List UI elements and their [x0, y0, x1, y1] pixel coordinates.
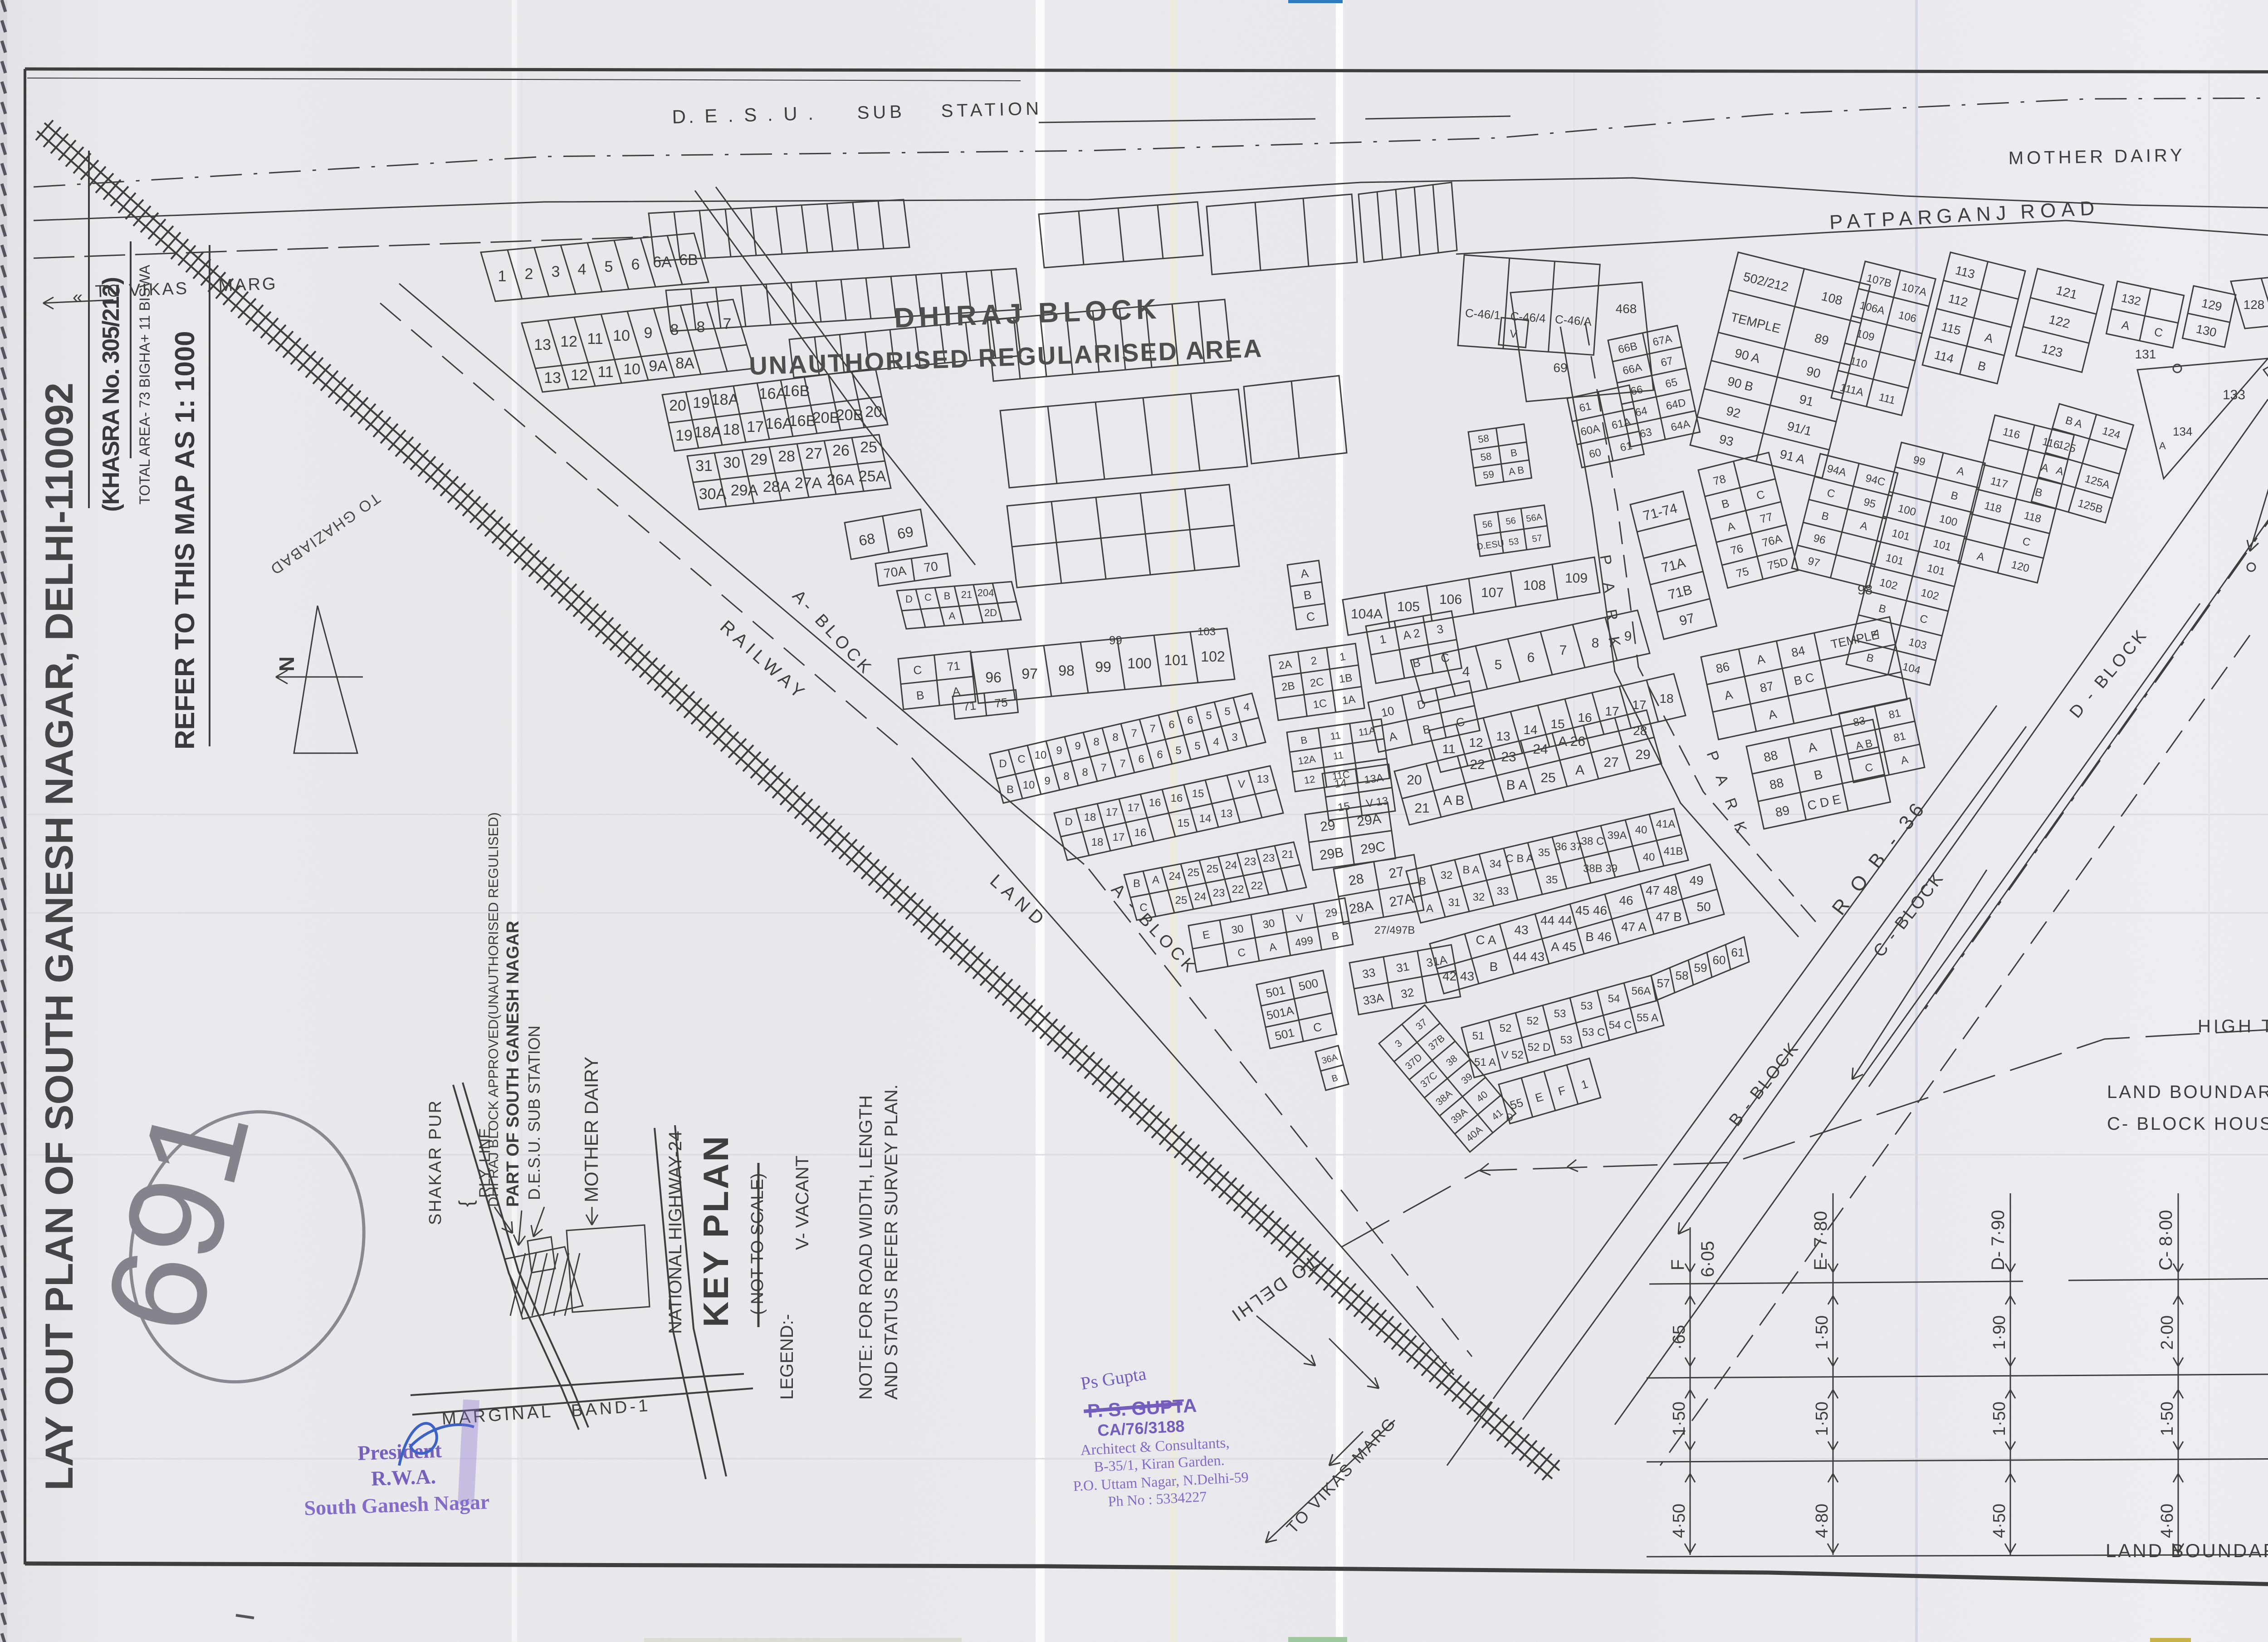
svg-text:133: 133 — [2223, 387, 2245, 402]
svg-text:13: 13 — [544, 369, 561, 387]
svg-text:7: 7 — [1119, 758, 1125, 770]
svg-text:11: 11 — [587, 330, 603, 348]
svg-text:A: A — [949, 610, 956, 622]
svg-text:51: 51 — [1472, 1030, 1485, 1042]
svg-text:43: 43 — [1514, 923, 1528, 937]
svg-text:14: 14 — [1334, 777, 1347, 790]
svg-text:18A: 18A — [711, 391, 739, 408]
svg-text:MOTHER DAIRY: MOTHER DAIRY — [581, 1057, 602, 1202]
svg-text:9A: 9A — [649, 358, 668, 375]
svg-text:SUB: SUB — [857, 102, 905, 123]
svg-text:B A: B A — [1506, 778, 1528, 793]
svg-text:1·90: 1·90 — [1990, 1315, 2009, 1350]
svg-text:6: 6 — [1138, 753, 1144, 765]
svg-text:A: A — [1426, 902, 1433, 915]
svg-text:87: 87 — [1759, 679, 1775, 696]
svg-text:45 46: 45 46 — [1575, 903, 1607, 917]
svg-text:44 43: 44 43 — [1513, 950, 1545, 964]
svg-text:69: 69 — [896, 523, 914, 542]
svg-text:17: 17 — [1605, 704, 1619, 718]
svg-text:56: 56 — [1482, 519, 1493, 530]
svg-text:3: 3 — [1232, 731, 1237, 744]
svg-text:2D: 2D — [984, 607, 997, 618]
svg-text:6: 6 — [1527, 650, 1535, 665]
svg-text:B: B — [1007, 784, 1014, 796]
svg-text:8: 8 — [1093, 736, 1099, 748]
svg-text:131: 131 — [2135, 347, 2156, 361]
svg-text:104A: 104A — [1351, 607, 1383, 622]
svg-text:35: 35 — [1546, 874, 1558, 886]
svg-text:59: 59 — [1694, 961, 1707, 975]
svg-text:11: 11 — [1442, 742, 1455, 756]
svg-text:1·50: 1·50 — [1670, 1402, 1689, 1436]
svg-text:4·50: 4·50 — [1670, 1504, 1689, 1538]
svg-text:NOTE: FOR ROAD WIDTH, LENGTH: NOTE: FOR ROAD WIDTH, LENGTH — [856, 1095, 876, 1400]
svg-text:61: 61 — [1731, 946, 1745, 959]
svg-text:56A: 56A — [1632, 985, 1651, 997]
svg-text:58: 58 — [1477, 432, 1490, 445]
svg-text:65: 65 — [1664, 376, 1679, 391]
svg-text:49: 49 — [1689, 873, 1703, 887]
svg-text:52: 52 — [1500, 1022, 1512, 1034]
svg-text:10: 10 — [1035, 749, 1047, 761]
svg-text:15: 15 — [1550, 717, 1564, 731]
svg-text:1: 1 — [498, 268, 507, 285]
svg-text:53: 53 — [1560, 1034, 1573, 1046]
svg-text:57: 57 — [1531, 533, 1543, 544]
svg-text:8: 8 — [1592, 636, 1599, 651]
svg-text:134: 134 — [2173, 425, 2192, 438]
svg-text:27: 27 — [1388, 864, 1405, 881]
svg-text:102: 102 — [1201, 648, 1225, 665]
svg-text:4: 4 — [578, 261, 587, 278]
svg-text:7: 7 — [1100, 762, 1106, 774]
svg-text:25: 25 — [1207, 863, 1219, 875]
svg-text:47 48: 47 48 — [1646, 883, 1677, 897]
svg-text:61: 61 — [1578, 400, 1593, 415]
svg-text:ROAD: ROAD — [2020, 197, 2100, 223]
svg-text:STATION: STATION — [941, 98, 1042, 121]
svg-text:LEGEND:-: LEGEND:- — [777, 1314, 797, 1400]
svg-text:C A: C A — [1476, 933, 1496, 947]
svg-text:35: 35 — [1538, 847, 1550, 859]
svg-text:51 A: 51 A — [1474, 1056, 1496, 1069]
svg-text:GANJ: GANJ — [1936, 201, 2012, 228]
svg-text:22: 22 — [1251, 880, 1263, 892]
svg-text:31: 31 — [695, 457, 713, 475]
svg-text:29: 29 — [1324, 906, 1338, 920]
svg-text:D.E.S.U. SUB STATION: D.E.S.U. SUB STATION — [525, 1025, 543, 1200]
svg-text:16B: 16B — [782, 382, 810, 400]
svg-text:17: 17 — [747, 418, 764, 436]
svg-text:9: 9 — [1624, 629, 1632, 644]
svg-text:128: 128 — [2244, 298, 2265, 312]
svg-text:6: 6 — [1168, 719, 1174, 731]
svg-text:1A: 1A — [1341, 693, 1356, 707]
svg-text:C: C — [1139, 902, 1147, 914]
svg-text:19: 19 — [675, 427, 693, 444]
svg-text:DHI RAJ BLOCK APPROVED(UNAUTHO: DHI RAJ BLOCK APPROVED(UNAUTHORISED REGU… — [485, 812, 501, 1207]
svg-text:2B: 2B — [1281, 680, 1296, 694]
svg-text:10: 10 — [1023, 779, 1035, 791]
svg-text:60: 60 — [1713, 953, 1726, 967]
svg-text:LAND BOUNDARY OF: LAND BOUNDARY OF — [2107, 1082, 2268, 1102]
svg-text:16: 16 — [1171, 792, 1183, 804]
svg-text:21: 21 — [961, 589, 972, 600]
svg-text:27: 27 — [1603, 755, 1618, 770]
svg-text:4·50: 4·50 — [1990, 1504, 2009, 1538]
svg-text:8: 8 — [1112, 731, 1118, 744]
svg-text:V 52: V 52 — [1501, 1049, 1523, 1061]
svg-text:31: 31 — [1395, 959, 1411, 975]
svg-text:8: 8 — [670, 321, 679, 338]
svg-text:109: 109 — [1565, 571, 1588, 586]
svg-text:14: 14 — [1199, 813, 1212, 825]
svg-text:30: 30 — [1262, 917, 1276, 931]
svg-text:{: { — [455, 1200, 477, 1207]
svg-text:100: 100 — [1127, 655, 1151, 672]
svg-text:18: 18 — [723, 421, 740, 438]
svg-text:50: 50 — [1696, 900, 1711, 914]
svg-text:12: 12 — [571, 367, 588, 384]
svg-text:A B: A B — [1443, 793, 1465, 808]
svg-text:C- 8·00: C- 8·00 — [2156, 1210, 2176, 1270]
svg-text:32: 32 — [1441, 869, 1453, 882]
svg-text:1C: 1C — [1312, 697, 1328, 711]
svg-text:86: 86 — [1715, 660, 1731, 676]
svg-text:9: 9 — [1075, 740, 1080, 752]
svg-text:13: 13 — [1221, 808, 1233, 820]
svg-text:20: 20 — [865, 403, 882, 421]
svg-text:81: 81 — [1887, 707, 1902, 721]
svg-text:88: 88 — [1762, 748, 1779, 765]
svg-text:28: 28 — [1348, 871, 1365, 888]
svg-text:23: 23 — [1263, 852, 1275, 864]
svg-text:58: 58 — [1676, 969, 1689, 982]
svg-text:6A: 6A — [653, 254, 672, 271]
svg-text:15: 15 — [1178, 817, 1190, 829]
svg-text:A 45: A 45 — [1551, 940, 1576, 954]
svg-text:3: 3 — [552, 263, 560, 280]
svg-text:8: 8 — [1063, 770, 1069, 783]
svg-text:46: 46 — [1619, 893, 1633, 907]
svg-text:8A: 8A — [675, 355, 694, 372]
svg-text:24: 24 — [1533, 742, 1548, 757]
svg-text:MOTHER DAIRY: MOTHER DAIRY — [2008, 145, 2185, 168]
svg-text:B: B — [944, 590, 951, 602]
svg-text:30: 30 — [1231, 922, 1245, 936]
svg-text:5: 5 — [1175, 745, 1181, 757]
svg-text:24: 24 — [1225, 859, 1237, 872]
svg-text:1·50: 1·50 — [1813, 1402, 1832, 1436]
svg-text:53: 53 — [1581, 1000, 1593, 1012]
svg-text:25: 25 — [1540, 770, 1555, 785]
svg-text:69: 69 — [1553, 361, 1567, 375]
svg-text:204: 204 — [978, 587, 994, 598]
svg-text:5: 5 — [1194, 740, 1200, 752]
svg-text:7: 7 — [1131, 727, 1137, 740]
svg-text:5: 5 — [1495, 657, 1502, 672]
svg-text:105: 105 — [1397, 599, 1420, 614]
svg-text:2: 2 — [525, 265, 533, 283]
svg-text:24: 24 — [1169, 870, 1181, 882]
svg-text:41B: 41B — [1664, 845, 1683, 858]
svg-text:D. E . S . U .: D. E . S . U . — [672, 103, 816, 127]
svg-text:6·05: 6·05 — [1698, 1241, 1718, 1277]
svg-text:C: C — [913, 663, 923, 677]
svg-text:71: 71 — [962, 699, 977, 714]
svg-text:25A: 25A — [859, 468, 886, 485]
svg-text:13: 13 — [1496, 729, 1510, 743]
svg-text:7: 7 — [723, 315, 732, 333]
svg-text:101: 101 — [1164, 652, 1188, 668]
svg-text:14: 14 — [1523, 723, 1537, 737]
svg-text:13: 13 — [1257, 773, 1269, 785]
svg-text:A 26: A 26 — [1558, 734, 1585, 749]
svg-text:18: 18 — [1091, 836, 1104, 848]
svg-text:28A: 28A — [763, 478, 791, 495]
svg-text:11: 11 — [1332, 749, 1344, 762]
svg-text:9: 9 — [644, 324, 653, 342]
svg-text:22: 22 — [1470, 757, 1485, 772]
svg-text:1·50: 1·50 — [1813, 1315, 1832, 1350]
svg-text:29: 29 — [750, 451, 767, 468]
svg-text:97: 97 — [1022, 666, 1038, 682]
svg-text:AND STATUS REFER SURVEY PLAN.: AND STATUS REFER SURVEY PLAN. — [881, 1084, 901, 1400]
svg-text:B 46: B 46 — [1585, 930, 1612, 944]
svg-text:47 A: 47 A — [1621, 920, 1647, 934]
svg-text:7: 7 — [1149, 723, 1155, 735]
svg-text:LAND BOUNDARY OF HOUSES—: LAND BOUNDARY OF HOUSES— — [2106, 1540, 2268, 1561]
svg-text:6: 6 — [1157, 749, 1163, 761]
svg-text:A: A — [1152, 874, 1159, 886]
svg-text:21: 21 — [1282, 848, 1294, 861]
svg-text:68: 68 — [858, 530, 876, 549]
svg-text:26A: 26A — [827, 471, 855, 489]
svg-text:84: 84 — [1790, 643, 1806, 660]
svg-text:B: B — [1133, 877, 1140, 890]
svg-text:20B: 20B — [836, 407, 864, 424]
svg-text:20: 20 — [669, 397, 686, 414]
svg-text:83: 83 — [1852, 715, 1867, 729]
svg-text:19: 19 — [693, 394, 710, 412]
svg-text:4: 4 — [1462, 664, 1470, 679]
svg-text:11: 11 — [597, 363, 613, 381]
svg-text:56: 56 — [1505, 515, 1516, 527]
svg-text:57: 57 — [1657, 976, 1670, 990]
svg-text:18A: 18A — [694, 424, 722, 441]
svg-text:TOTAL AREA- 73 BIGHA+ 11 BISWA: TOTAL AREA- 73 BIGHA+ 11 BISWA — [137, 265, 153, 505]
svg-text:11: 11 — [1330, 730, 1341, 742]
svg-text:23: 23 — [1501, 750, 1516, 765]
svg-text:67: 67 — [1660, 355, 1674, 369]
svg-text:7: 7 — [1559, 643, 1567, 658]
svg-text:40: 40 — [1635, 824, 1647, 836]
svg-text:1·50: 1·50 — [1990, 1402, 2009, 1436]
svg-text:24: 24 — [1194, 891, 1207, 903]
svg-text:71: 71 — [946, 659, 961, 674]
svg-text:39A: 39A — [1608, 829, 1627, 842]
svg-text:15: 15 — [1192, 788, 1204, 800]
svg-text:468: 468 — [1616, 302, 1637, 316]
svg-text:C B A: C B A — [1505, 853, 1533, 865]
svg-text:52 D: 52 D — [1528, 1041, 1551, 1054]
svg-text:LAY OUT PLAN OF SOUTH GANESH N: LAY OUT PLAN OF SOUTH GANESH NAGAR, DELH… — [38, 382, 81, 1490]
svg-text:D- 7·90: D- 7·90 — [1988, 1210, 2008, 1270]
svg-text:A: A — [1575, 763, 1584, 778]
svg-text:A: A — [2159, 440, 2166, 451]
svg-text:10: 10 — [623, 361, 640, 378]
svg-text:«: « — [73, 287, 83, 307]
svg-text:C-46/1: C-46/1 — [1465, 306, 1501, 322]
svg-text:6: 6 — [631, 256, 640, 273]
svg-text:A B: A B — [1508, 464, 1525, 478]
svg-text:23: 23 — [1213, 887, 1225, 899]
svg-text:33: 33 — [1497, 885, 1509, 897]
svg-text:1·50: 1·50 — [2158, 1402, 2177, 1436]
svg-text:26: 26 — [832, 442, 850, 459]
svg-text:B A: B A — [1462, 864, 1479, 876]
svg-text:33: 33 — [1361, 966, 1377, 981]
svg-text:F: F — [1668, 1260, 1688, 1270]
svg-text:10: 10 — [1380, 704, 1396, 720]
svg-text:17: 17 — [1113, 831, 1125, 843]
svg-text:107: 107 — [1481, 585, 1504, 600]
svg-text:E- 7·80: E- 7·80 — [1811, 1211, 1831, 1270]
svg-text:60: 60 — [1588, 446, 1603, 461]
svg-text:103: 103 — [1198, 626, 1216, 638]
svg-text:HIGH TENSION—: HIGH TENSION— — [2198, 1016, 2268, 1036]
svg-text:V: V — [1238, 778, 1245, 790]
svg-text:38 C: 38 C — [1581, 835, 1604, 848]
svg-text:SHAKAR PUR: SHAKAR PUR — [426, 1099, 445, 1225]
svg-text:27/497B: 27/497B — [1374, 924, 1415, 936]
svg-text:29A: 29A — [731, 482, 758, 499]
svg-text:88: 88 — [1768, 775, 1785, 792]
svg-text:16: 16 — [1578, 711, 1592, 725]
svg-text:25: 25 — [1188, 867, 1200, 879]
svg-text:KEY PLAN: KEY PLAN — [696, 1134, 736, 1327]
svg-text:8: 8 — [1082, 766, 1088, 779]
svg-text:52: 52 — [1527, 1015, 1539, 1027]
svg-text:89: 89 — [1774, 803, 1791, 820]
svg-text:REFER TO THIS MAP AS 1: 1000: REFER TO THIS MAP AS 1: 1000 — [170, 331, 200, 750]
svg-text:59: 59 — [1482, 468, 1495, 481]
svg-text:98: 98 — [1058, 662, 1075, 679]
svg-text:106: 106 — [1439, 592, 1462, 607]
svg-text:18: 18 — [1659, 691, 1673, 706]
svg-text:D: D — [905, 593, 913, 605]
svg-text:31: 31 — [1448, 897, 1461, 909]
svg-text:5: 5 — [605, 258, 613, 275]
svg-text:25: 25 — [860, 439, 877, 456]
svg-text:21: 21 — [1414, 801, 1429, 816]
svg-text:29: 29 — [1635, 747, 1650, 762]
svg-text:4·60: 4·60 — [2158, 1504, 2177, 1538]
svg-text:V- VACANT: V- VACANT — [792, 1156, 812, 1250]
svg-text:16: 16 — [1149, 797, 1161, 809]
svg-text:53: 53 — [1554, 1008, 1566, 1020]
svg-text:(KHASRA No. 305/212): (KHASRA No. 305/212) — [98, 278, 124, 512]
svg-text:C- BLOCK HOUSES: C- BLOCK HOUSES — [2107, 1114, 2268, 1134]
svg-text:4: 4 — [1213, 736, 1219, 748]
svg-text:53: 53 — [1508, 536, 1520, 548]
svg-text:9: 9 — [1044, 775, 1050, 787]
svg-text:32: 32 — [1400, 985, 1415, 1001]
svg-text:75: 75 — [994, 695, 1008, 710]
svg-text:20: 20 — [1407, 773, 1422, 788]
svg-text:29: 29 — [1319, 818, 1336, 834]
svg-text:4·80: 4·80 — [1813, 1504, 1832, 1538]
svg-text:C-46/A: C-46/A — [1554, 312, 1592, 328]
svg-text:23: 23 — [1244, 856, 1256, 868]
svg-text:B: B — [1490, 960, 1498, 974]
svg-text:27A: 27A — [795, 475, 822, 492]
svg-text:53 C: 53 C — [1582, 1026, 1605, 1039]
svg-text:·65: ·65 — [1670, 1325, 1689, 1350]
svg-text:12: 12 — [1469, 735, 1483, 750]
svg-text:58: 58 — [1480, 451, 1492, 463]
svg-text:12: 12 — [560, 333, 577, 350]
svg-text:16: 16 — [1134, 827, 1147, 839]
svg-text:30: 30 — [723, 454, 740, 471]
svg-text:10: 10 — [613, 327, 630, 344]
svg-text:4: 4 — [1243, 701, 1249, 713]
svg-text:2A: 2A — [1278, 658, 1293, 672]
svg-text:17: 17 — [1106, 806, 1118, 819]
svg-text:44 44: 44 44 — [1540, 913, 1572, 927]
svg-text:12: 12 — [1303, 773, 1316, 786]
svg-text:38B 39: 38B 39 — [1583, 863, 1618, 875]
svg-text:70: 70 — [923, 559, 939, 575]
svg-text:PART OF SOUTH GANESH NAGAR: PART OF SOUTH GANESH NAGAR — [503, 921, 523, 1207]
svg-text:61: 61 — [1619, 440, 1633, 454]
svg-text:22: 22 — [1232, 883, 1244, 896]
svg-text:1B: 1B — [1338, 672, 1353, 686]
svg-text:55 A: 55 A — [1637, 1012, 1658, 1024]
svg-text:36 37: 36 37 — [1555, 841, 1582, 853]
svg-text:32: 32 — [1473, 891, 1485, 903]
svg-text:D: D — [1065, 816, 1072, 828]
svg-text:13: 13 — [534, 336, 551, 353]
svg-text:5: 5 — [1206, 710, 1212, 722]
svg-text:C: C — [1017, 753, 1025, 765]
svg-text:B: B — [915, 688, 924, 703]
svg-text:15: 15 — [1337, 800, 1351, 814]
svg-text:40: 40 — [1643, 851, 1655, 863]
svg-text:18: 18 — [1084, 811, 1096, 823]
svg-text:2·00: 2·00 — [2158, 1315, 2177, 1350]
svg-text:27: 27 — [805, 445, 822, 462]
svg-text:47 B: 47 B — [1656, 910, 1682, 924]
svg-text:8: 8 — [697, 319, 705, 336]
svg-text:D: D — [999, 758, 1007, 770]
svg-text:17: 17 — [1128, 802, 1140, 814]
svg-text:6: 6 — [1187, 714, 1193, 726]
svg-text:30A: 30A — [699, 485, 727, 503]
svg-text:108: 108 — [1523, 578, 1546, 593]
svg-text:96: 96 — [985, 669, 1002, 686]
svg-text:99: 99 — [1109, 633, 1122, 647]
svg-text:28: 28 — [778, 448, 795, 465]
svg-text:NATIONAL HIGHWAY-24: NATIONAL HIGHWAY-24 — [665, 1131, 685, 1334]
svg-text:54: 54 — [1608, 993, 1620, 1005]
svg-text:9: 9 — [1056, 745, 1062, 757]
svg-text:99: 99 — [1095, 659, 1111, 675]
svg-text:41A: 41A — [1656, 818, 1676, 830]
svg-text:54 C: 54 C — [1609, 1019, 1632, 1031]
svg-text:N: N — [275, 657, 298, 672]
